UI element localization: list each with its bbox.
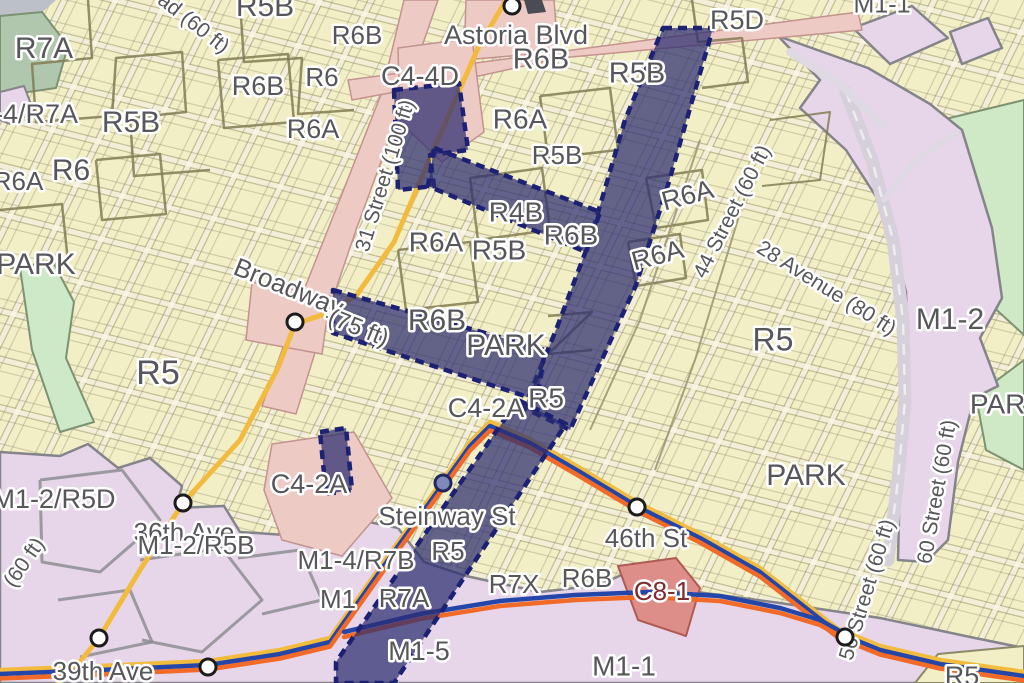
zoning-label-r6b: R6B [513, 44, 569, 76]
subway-station-marker[interactable] [175, 495, 191, 511]
zoning-label-r6a: R6A [409, 226, 464, 257]
zoning-label-r5b: R5B [532, 140, 583, 170]
zoning-label-m1-2: M1-2 [916, 303, 984, 336]
zoning-label-r6a: R6A [287, 114, 340, 144]
zoning-label-park: PARK [766, 459, 845, 492]
zoning-label-r5: R5 [431, 536, 464, 566]
zoning-label-4-r7a: -4/R7A [0, 99, 78, 129]
zoning-label-r6: R6 [52, 154, 90, 187]
zoning-label-c4-4d: C4-4D [381, 61, 459, 91]
zoning-label-m1-4-r7b: M1-4/R7B [297, 545, 414, 575]
zoning-label-r5: R5 [528, 382, 564, 413]
zoning-label-r5b: R5B [472, 234, 526, 265]
zoning-label-park: PARK [970, 388, 1024, 419]
zoning-label-m1-5: M1-5 [388, 636, 450, 666]
subway-station-marker[interactable] [435, 475, 451, 491]
zoning-label-r6b: R6B [544, 219, 598, 250]
zoning-label-r6a: R6A [493, 103, 548, 134]
zoning-label-r5: R5 [753, 321, 794, 357]
zoning-label-46th-st: 46th St [605, 523, 688, 553]
zoning-label-r5b: R5B [236, 0, 294, 23]
zoning-label-39th-ave: 39th Ave [53, 656, 154, 683]
zoning-label-r6b: R6B [408, 304, 466, 337]
zoning-label-m1-2-r5b: M1-2/R5B [137, 530, 254, 560]
zoning-label-r5d: R5D [710, 5, 764, 35]
zoning-label-m1-1: M1-1 [592, 650, 656, 681]
zoning-label-r5: R5 [945, 661, 980, 683]
subway-station-marker[interactable] [91, 630, 107, 646]
zoning-label-r6b: R6B [562, 563, 613, 593]
zoning-label-r5: R5 [136, 354, 179, 392]
zoning-label-r6a: R6A [0, 166, 44, 196]
zoning-label-r5b: R5B [609, 58, 665, 90]
zoning-label-c4-2a: C4-2A [271, 469, 348, 499]
zoning-label-park: PARK [0, 248, 76, 281]
zoning-label-r6b: R6B [332, 20, 383, 50]
zoning-label-r5b: R5B [102, 106, 160, 139]
zoning-map[interactable]: R5Bad (60 ft)R7AR6BR6R6BAstoria BlvdR6BR… [0, 0, 1024, 683]
subway-station-marker[interactable] [504, 0, 520, 14]
zoning-label-r6: R6 [305, 62, 338, 92]
zoning-label-r7a: R7A [379, 583, 430, 613]
zoning-label-steinway-st: Steinway St [378, 501, 516, 531]
zoning-label-c8-1: C8-1 [634, 576, 690, 606]
zoning-label-m1-2-r5d: M1-2/R5D [0, 484, 116, 514]
subway-station-marker[interactable] [200, 659, 216, 675]
zoning-label-c4-2a: C4-2A [448, 393, 525, 423]
subway-station-marker[interactable] [287, 314, 303, 330]
zoning-label-r6b: R6B [232, 71, 285, 101]
zoning-label-r7x: R7X [489, 569, 540, 599]
zoning-label-park: PARK [466, 329, 545, 362]
zoning-map-viewport[interactable]: R5Bad (60 ft)R7AR6BR6R6BAstoria BlvdR6BR… [0, 0, 1024, 683]
subway-station-marker[interactable] [629, 499, 645, 515]
zoning-label-m1-1: M1-1 [854, 0, 911, 19]
zoning-label-r7a: R7A [15, 32, 73, 65]
subway-station-marker[interactable] [837, 629, 853, 645]
zoning-label-m1: M1 [320, 584, 356, 614]
zoning-label-r4b: R4B [489, 196, 543, 227]
